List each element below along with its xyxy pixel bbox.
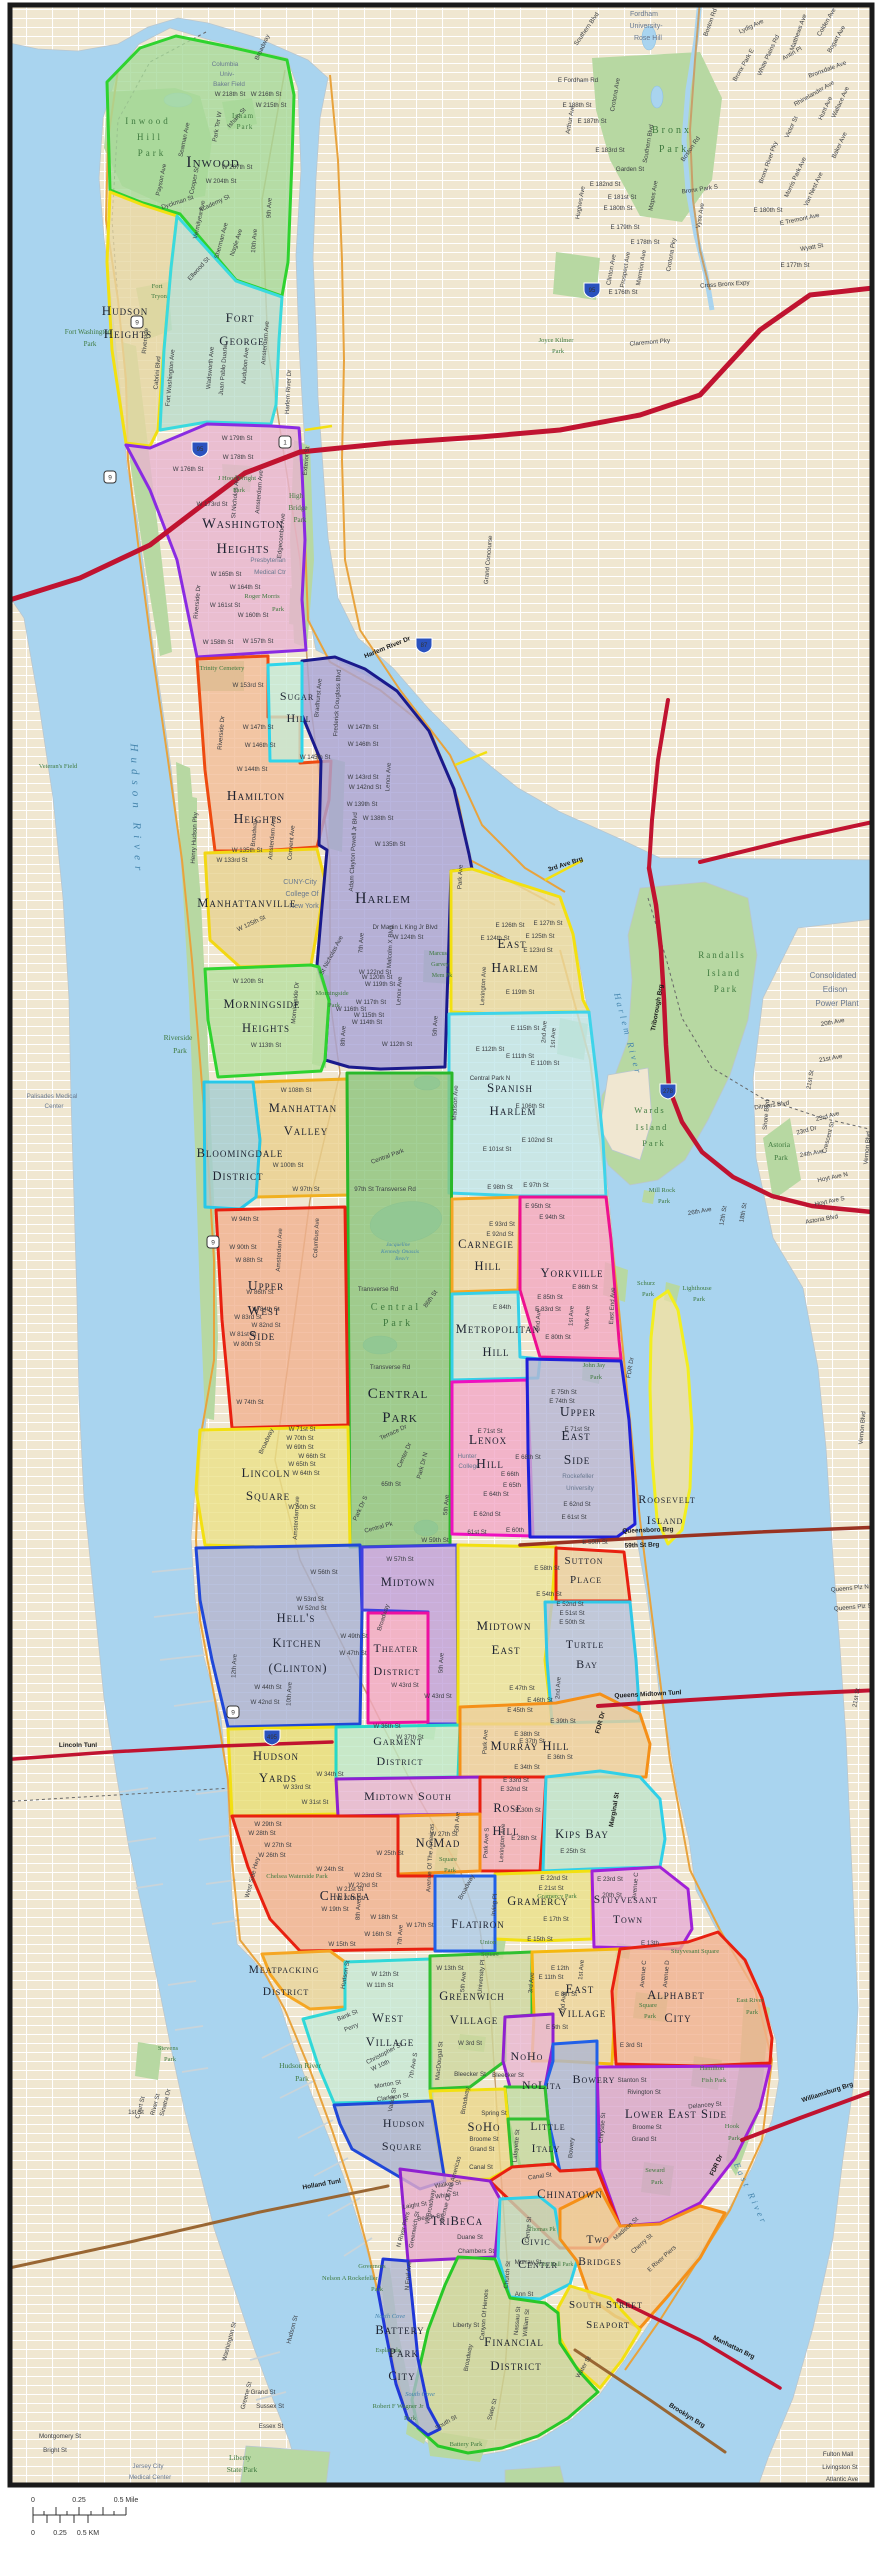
street-label: E 95th St bbox=[525, 1203, 551, 1210]
park-label: Schurz bbox=[637, 1280, 655, 1287]
park-label: High bbox=[289, 492, 304, 500]
neighborhood-label-washington-heights: Washington bbox=[202, 516, 284, 532]
park-label: Chelsea Waterside Park bbox=[266, 1873, 328, 1880]
park-label: Veteran's Field bbox=[39, 763, 78, 770]
street-label: W 47th St bbox=[339, 1650, 366, 1657]
neighborhood-label-east-village: East bbox=[566, 1982, 595, 1996]
scale-bar: 00.250.5 Mile00.250.5 KM bbox=[31, 2497, 138, 2537]
shield-number: 87 bbox=[421, 643, 428, 649]
street-label: W 94th St bbox=[231, 1216, 258, 1223]
street-label: Park Ave bbox=[456, 864, 464, 890]
street-label: 8th Ave bbox=[339, 1025, 347, 1046]
neighborhood-label-upper-east-side: Upper bbox=[560, 1404, 596, 1419]
neighborhood-label-two-bridges: Two bbox=[586, 2234, 609, 2246]
street-label: E 52nd St bbox=[556, 1601, 583, 1608]
neighborhood-label-two-bridges: Bridges bbox=[578, 2256, 622, 2268]
park-label: Park bbox=[714, 984, 739, 994]
park-label: Park bbox=[84, 340, 97, 348]
neighborhood-label-central-park: Central bbox=[368, 1386, 428, 1402]
street-label: W 139th St bbox=[347, 801, 378, 808]
street-label: E 46th St bbox=[527, 1697, 553, 1704]
park-label: Park bbox=[328, 1002, 341, 1009]
street-label: E 64th St bbox=[483, 1491, 509, 1498]
park-label: Park bbox=[693, 1296, 706, 1303]
street-label: W 64th St bbox=[292, 1470, 319, 1477]
neighborhood-label-hudson-yards: Hudson bbox=[253, 1749, 299, 1763]
street-label: Stanton St bbox=[618, 2077, 647, 2084]
street-label: Grand St bbox=[251, 2389, 276, 2396]
street-label: E 177th St bbox=[781, 262, 810, 269]
institution-label: Medical Ctr bbox=[254, 569, 286, 576]
street-label: E 179th St bbox=[611, 224, 640, 231]
street-label: 65th St bbox=[381, 1481, 401, 1488]
institution-label: Columbia bbox=[212, 61, 239, 68]
park-label: Bridge bbox=[288, 504, 307, 512]
street-label: E 58th St bbox=[534, 1565, 560, 1572]
street-label: 1st Ave bbox=[549, 1027, 557, 1048]
neighborhood-label-hells-kitchen: Kitchen bbox=[272, 1636, 321, 1650]
street-label: E 68th St bbox=[515, 1454, 541, 1461]
street-label: W 25th St bbox=[376, 1850, 403, 1857]
park-label: Randalls bbox=[698, 950, 746, 960]
street-label: E 62nd St bbox=[473, 1511, 500, 1518]
neighborhood-label-south-street-seaport: South Street bbox=[569, 2299, 643, 2311]
park-label: Park bbox=[644, 2013, 657, 2020]
street-label: W 33rd St bbox=[283, 1784, 311, 1791]
street-label: W 36th St bbox=[373, 1723, 400, 1730]
street-label: W 17th St bbox=[406, 1922, 433, 1929]
neighborhood-label-soho: SoHo bbox=[468, 2120, 501, 2134]
institution-label: Fordham bbox=[630, 11, 658, 18]
street-label: W 16th St bbox=[364, 1931, 391, 1938]
park-label: East River bbox=[736, 1997, 764, 2004]
institution-label: Medical Center bbox=[129, 2474, 171, 2481]
street-label: Atlantic Ave bbox=[826, 2476, 859, 2483]
street-label: E 17th St bbox=[543, 1916, 569, 1923]
street-label: E 47th St bbox=[509, 1685, 535, 1692]
street-label: E 102nd St bbox=[522, 1137, 553, 1144]
street-label: W 24th St bbox=[316, 1866, 343, 1873]
street-label: Grand St bbox=[470, 2146, 495, 2153]
street-label: W 114th St bbox=[352, 1019, 382, 1026]
street-label: Essex St bbox=[259, 2423, 284, 2430]
institution-label: Rose Hill bbox=[634, 35, 662, 42]
street-label: W 135th St bbox=[375, 841, 406, 848]
street-label: 2nd Ave bbox=[540, 1020, 548, 1043]
street-label: W 66th St bbox=[298, 1453, 325, 1460]
park-label: Park bbox=[642, 1291, 655, 1298]
scale-mile-label: 0.25 bbox=[72, 2497, 86, 2504]
neighborhood-label-hudson-heights: Heights bbox=[104, 326, 152, 341]
street-label: E 182nd St bbox=[590, 181, 621, 188]
park-label: Trinity Cemetery bbox=[200, 665, 245, 672]
park-label: Park bbox=[272, 606, 285, 613]
park-label: Park bbox=[237, 123, 254, 131]
street-label: Bleecker St bbox=[492, 2072, 524, 2079]
neighborhood-label-hudson-heights: Hudson bbox=[102, 303, 148, 318]
street-label: Dr Martin L King Jr Blvd bbox=[372, 924, 438, 931]
neighborhood-label-upper-east-side: Side bbox=[564, 1452, 591, 1467]
street-label: W 120th St bbox=[362, 974, 393, 981]
neighborhood-label-alphabet-city: City bbox=[664, 2011, 691, 2025]
street-label: E 3rd St bbox=[620, 2042, 643, 2049]
neighborhood-label-little-italy: Little bbox=[530, 2121, 565, 2133]
park-label: Square bbox=[639, 2002, 657, 2009]
street-label: W 145th St bbox=[300, 754, 331, 761]
neighborhood-label-greenwich-village: Greenwich bbox=[439, 1989, 505, 2003]
neighborhood-label-morningside-heights: Morningside bbox=[223, 997, 300, 1011]
neighborhood-label-fort-george: Fort bbox=[226, 310, 255, 325]
street-label: W 70th St bbox=[286, 1435, 313, 1442]
institution-label: Power Plant bbox=[815, 999, 859, 1008]
neighborhood-label-hells-kitchen: (Clinton) bbox=[269, 1661, 328, 1675]
road-label: Lincoln Tunl bbox=[59, 1742, 97, 1749]
street-label: E 34th St bbox=[514, 1764, 540, 1771]
institution-label: Edison bbox=[823, 985, 847, 994]
street-label: Ann St bbox=[515, 2291, 534, 2298]
street-label: W 112th St bbox=[382, 1041, 412, 1048]
neighborhood-label-roosevelt-island: Island bbox=[647, 1513, 684, 1527]
street-label: W 43rd St bbox=[391, 1682, 419, 1689]
park-label: John Jay bbox=[583, 1362, 606, 1369]
street-label: W 42nd St bbox=[251, 1699, 280, 1706]
street-label: E 38th St bbox=[514, 1731, 540, 1738]
street-label: 12th Ave bbox=[230, 1653, 238, 1678]
neighborhood-label-inwood: Inwood bbox=[186, 154, 240, 171]
neighborhood-label-financial-district: Financial bbox=[484, 2334, 544, 2349]
park-label: Tryon bbox=[151, 293, 167, 300]
street-label: W 173rd St bbox=[197, 501, 228, 508]
neighborhood-label-theater-district: District bbox=[374, 1664, 421, 1678]
neighborhood-label-hudson-yards: Yards bbox=[259, 1771, 297, 1785]
street-label: 7th Ave bbox=[396, 1924, 404, 1945]
street-label: W 143rd St bbox=[348, 774, 379, 781]
street-label: 5th Ave bbox=[431, 1015, 439, 1036]
street-label: E 51st St bbox=[559, 1610, 584, 1617]
park-label: Park bbox=[774, 1153, 788, 1162]
street-label: E 183rd St bbox=[595, 147, 625, 154]
park-label: Park bbox=[658, 1198, 671, 1205]
street-label: W 178th St bbox=[223, 454, 254, 461]
shield-number: 278 bbox=[663, 1089, 674, 1095]
park-label: Lighthouse bbox=[682, 1285, 711, 1292]
shield-number: 9 bbox=[211, 1240, 215, 1247]
neighborhood-label-yorkville: Yorkville bbox=[540, 1266, 603, 1280]
shield-number: 9 bbox=[108, 475, 112, 482]
street-label: E 50th St bbox=[559, 1619, 585, 1626]
street-label: E Fordham Rd bbox=[558, 77, 599, 84]
street-label: 5th Ave bbox=[453, 1811, 461, 1832]
neighborhood-label-east-village: Village bbox=[558, 2006, 607, 2020]
neighborhood-label-little-italy: Italy bbox=[532, 2143, 561, 2155]
neighborhood-label-sutton-place: Place bbox=[570, 1574, 602, 1586]
institution-label: Baker Field bbox=[213, 81, 245, 88]
street-label: W 13th St bbox=[436, 1965, 463, 1972]
water-label: Kennedy Onassis bbox=[380, 1249, 419, 1255]
street-label: E 98th St bbox=[487, 1184, 513, 1191]
institution-label: Rockefeller bbox=[562, 1473, 594, 1480]
street-label: W 44th St bbox=[254, 1684, 281, 1691]
street-label: W 138th St bbox=[363, 815, 394, 822]
map-image: W 218th StW 216th StW 215th StW 207th St… bbox=[0, 0, 882, 2560]
street-label: York Ave bbox=[583, 1305, 591, 1330]
street-label: E 94th St bbox=[539, 1214, 565, 1221]
neighborhood-label-midtown-east: East bbox=[492, 1642, 521, 1657]
neighborhood-label-manhattan-valley: Manhattan bbox=[269, 1101, 337, 1115]
institution-label: Hunter bbox=[458, 1453, 477, 1460]
park-label: Park bbox=[728, 2135, 741, 2142]
street-label: Broome St bbox=[469, 2136, 499, 2143]
street-label: W 29th St bbox=[254, 1821, 281, 1828]
street-label: W 108th St bbox=[281, 1087, 312, 1094]
neighborhood-label-spanish-harlem: Spanish bbox=[487, 1080, 533, 1095]
street-label: W 27th St bbox=[264, 1842, 291, 1849]
street-label: E 178th St bbox=[631, 239, 660, 246]
street-label: W 133rd St bbox=[217, 857, 248, 864]
street-label: Broome St bbox=[632, 2124, 662, 2131]
neighborhood-label-morningside-heights: Heights bbox=[242, 1021, 290, 1035]
street-label: E 23rd St bbox=[597, 1876, 623, 1883]
street-label: E 127th St bbox=[534, 920, 563, 927]
neighborhood-upper-east-side bbox=[527, 1359, 635, 1537]
park-label: Park bbox=[233, 487, 246, 494]
street-label: Montgomery St bbox=[39, 2433, 81, 2440]
street-label: Grand St bbox=[632, 2136, 657, 2143]
street-label: E 11th St bbox=[539, 1974, 564, 1981]
water-body bbox=[651, 86, 663, 108]
neighborhood-label-fort-george: George bbox=[219, 333, 264, 348]
street-label: E 110th St bbox=[531, 1060, 560, 1067]
neighborhood-label-stuyvesant-town: Town bbox=[613, 1914, 643, 1926]
neighborhood-label-east-harlem: East bbox=[497, 936, 526, 951]
street-label: Bright St bbox=[43, 2447, 67, 2454]
street-label: W 71st St bbox=[289, 1426, 316, 1433]
neighborhood-label-garment-district: Garment bbox=[373, 1734, 422, 1748]
street-label: E 180th St bbox=[604, 205, 633, 212]
street-label: E 112th St bbox=[476, 1046, 505, 1053]
scale-km-label: 0.5 KM bbox=[77, 2530, 99, 2537]
park-label: Nelson A Rockefeller bbox=[322, 2275, 379, 2282]
park-label: Park bbox=[164, 2056, 177, 2063]
street-label: W 43rd St bbox=[424, 1693, 452, 1700]
neighborhood-label-kips-bay: Kips Bay bbox=[555, 1827, 609, 1841]
scale-km-label: 0.25 bbox=[53, 2530, 67, 2537]
street-label: W 215th St bbox=[256, 102, 287, 109]
street-label: E 93rd St bbox=[489, 1221, 515, 1228]
street-label: E 85th St bbox=[537, 1294, 563, 1301]
park-label: Battery Park bbox=[450, 2441, 483, 2448]
street-label: W 31st St bbox=[302, 1799, 329, 1806]
neighborhood-label-roosevelt-island: Roosevelt bbox=[638, 1492, 696, 1506]
street-label: E 22nd St bbox=[540, 1875, 567, 1882]
street-label: E 80th St bbox=[545, 1334, 571, 1341]
neighborhood-label-nomad: NoMad bbox=[416, 1836, 461, 1850]
street-label: W 3rd St bbox=[458, 2040, 482, 2047]
neighborhood-label-upper-west-side: Upper bbox=[248, 1278, 284, 1293]
neighborhood-label-greenwich-village: Village bbox=[450, 2013, 499, 2027]
neighborhood-label-upper-west-side: West bbox=[248, 1303, 281, 1318]
street-label: Garden St bbox=[616, 166, 644, 173]
street-label: Transverse Rd bbox=[370, 1364, 411, 1371]
shield-number: 95 bbox=[589, 288, 596, 294]
neighborhood-label-turtle-bay: Bay bbox=[576, 1657, 598, 1671]
neighborhood-label-hudson-square: Hudson bbox=[383, 2116, 425, 2130]
neighborhood-label-stuyvesant-town: Stuyvesant bbox=[594, 1894, 658, 1906]
street-label: E 84th bbox=[493, 1304, 511, 1311]
park-label: Union bbox=[480, 1939, 497, 1946]
street-label: E 12th bbox=[551, 1965, 569, 1972]
street-label: E 115th St bbox=[511, 1025, 540, 1032]
street-label: W 204th St bbox=[206, 178, 237, 185]
street-label: 1st St bbox=[128, 2109, 144, 2116]
street-label: W 117th St bbox=[356, 999, 386, 1006]
street-label: E 45th St bbox=[507, 1707, 533, 1714]
street-label: W 113th St bbox=[251, 1042, 281, 1049]
street-label: W 176th St bbox=[173, 466, 204, 473]
park-label: Hamilton bbox=[700, 2065, 725, 2072]
water-label: Resv'r bbox=[394, 1256, 410, 1262]
park-label: Hook bbox=[725, 2123, 740, 2130]
park-label: Park bbox=[294, 516, 307, 524]
neighborhood-label-theater-district: Theater bbox=[374, 1641, 419, 1655]
neighborhood-label-west-village: Village bbox=[366, 2035, 415, 2049]
street-label: Spring St bbox=[481, 2110, 507, 2117]
street-label: 7th Ave bbox=[357, 932, 365, 953]
street-label: E 65th bbox=[503, 1482, 521, 1489]
street-label: W 146th St bbox=[348, 741, 379, 748]
park-label: Morningside bbox=[315, 990, 348, 997]
street-label: W 124th St bbox=[393, 934, 424, 941]
institution-label: Presbyterian bbox=[250, 557, 286, 564]
neighborhood-label-rose-hill: Rose bbox=[493, 1801, 522, 1815]
street-label: W 15th St bbox=[328, 1941, 355, 1948]
institution-label: Center bbox=[45, 1103, 64, 1110]
street-label: W 218th St bbox=[215, 91, 246, 98]
park-label: Park bbox=[371, 2286, 384, 2293]
street-label: E 13th bbox=[641, 1940, 659, 1947]
street-label: E 97th St bbox=[523, 1182, 549, 1189]
shield-number: 95 bbox=[197, 447, 204, 453]
park-label: Inwood bbox=[125, 116, 171, 126]
park-label: Bronx bbox=[652, 125, 692, 136]
street-label: E 61st St bbox=[561, 1514, 586, 1521]
park-label: Square bbox=[439, 1856, 457, 1863]
street-label: E 60th bbox=[506, 1527, 524, 1534]
manhattan-neighborhoods-map: W 218th StW 216th StW 215th StW 207th St… bbox=[0, 0, 882, 2560]
neighborhood-label-financial-district: District bbox=[490, 2358, 541, 2373]
street-label: W 100th St bbox=[273, 1162, 304, 1169]
street-label: W 49th St bbox=[340, 1633, 367, 1640]
park-label: Park bbox=[659, 144, 689, 155]
street-label: E 188th St bbox=[563, 102, 592, 109]
street-label: E 111th St bbox=[506, 1053, 534, 1060]
neighborhood-label-turtle-bay: Turtle bbox=[566, 1637, 605, 1651]
institution-label: Jersey City bbox=[132, 2463, 164, 2470]
street-label: W 69th St bbox=[286, 1444, 313, 1451]
neighborhood-label-rose-hill: Hill bbox=[492, 1824, 519, 1838]
street-label: 97th St Transverse Rd bbox=[354, 1186, 416, 1193]
park-label: Stevens bbox=[158, 2045, 179, 2052]
neighborhood-label-lincoln-square: Lincoln bbox=[242, 1465, 291, 1480]
street-label: W 57th St bbox=[386, 1556, 413, 1563]
neighborhood-kips-bay bbox=[543, 1771, 665, 1871]
park-label: Park bbox=[552, 348, 565, 355]
park-label: Island bbox=[707, 968, 741, 978]
street-label: 2nd Ave bbox=[554, 1676, 562, 1699]
neighborhood-label-bloomingdale-district: District bbox=[212, 1169, 263, 1183]
neighborhood-label-bloomingdale-district: Bloomingdale bbox=[197, 1146, 284, 1160]
street-label: Rivington St bbox=[627, 2089, 661, 2096]
street-label: W 28th St bbox=[248, 1830, 275, 1837]
street-label: W 142nd St bbox=[349, 784, 382, 791]
street-label: E 59th St bbox=[582, 1539, 608, 1546]
park-label: Park bbox=[651, 2179, 664, 2186]
neighborhood-label-spanish-harlem: Harlem bbox=[490, 1103, 537, 1118]
street-label: W 165th St bbox=[211, 571, 242, 578]
street-label: W 147th St bbox=[243, 724, 274, 731]
street-label: W 18th St bbox=[370, 1914, 397, 1921]
street-label: W 59th St bbox=[421, 1537, 448, 1544]
street-label: E 54th St bbox=[536, 1591, 562, 1598]
neighborhood-label-battery-park-city: City bbox=[388, 2369, 415, 2383]
park-label: Square bbox=[481, 1951, 499, 1958]
street-label: 9th Ave bbox=[265, 197, 273, 218]
street-label: 61st St bbox=[467, 1529, 487, 1536]
street-label: W 11th St bbox=[367, 1982, 394, 1989]
neighborhood-label-hamilton-heights: Hamilton bbox=[227, 788, 285, 803]
neighborhood-label-lenox-hill: Hill bbox=[476, 1456, 504, 1471]
park-label: Park bbox=[138, 148, 167, 158]
street-label: W 56th St bbox=[310, 1569, 337, 1576]
park-label: Governors bbox=[358, 2263, 386, 2270]
street-label: Livingston St bbox=[822, 2464, 858, 2471]
shield-number: 9 bbox=[231, 1710, 235, 1717]
street-label: Liberty St bbox=[453, 2322, 479, 2329]
street-label: E 5th St bbox=[546, 2024, 568, 2031]
street-label: W 147th St bbox=[348, 724, 379, 731]
street-label: W 19th St bbox=[321, 1906, 348, 1913]
neighborhood-label-metropolitan-hill: Metropolitan bbox=[456, 1322, 540, 1336]
neighborhood-label-east-harlem: Harlem bbox=[491, 960, 538, 975]
neighborhood-label-harlem: Harlem bbox=[355, 890, 411, 907]
street-label: W 164th St bbox=[230, 584, 261, 591]
street-label: Fulton Mall bbox=[823, 2451, 853, 2458]
street-label: W 97th St bbox=[292, 1186, 319, 1193]
park-label: Robert F Wagner Jr bbox=[373, 2403, 425, 2410]
street-label: Chambers St bbox=[458, 2248, 494, 2255]
neighborhood-label-gramercy: Gramercy bbox=[507, 1894, 569, 1908]
institution-label: Consolidated bbox=[810, 971, 857, 980]
street-label: 5th Ave bbox=[437, 1652, 445, 1673]
street-label: E 187th St bbox=[578, 118, 607, 125]
street-label: E 36th St bbox=[547, 1754, 573, 1761]
street-label: E 119th St bbox=[506, 989, 535, 996]
street-label: E 176th St bbox=[609, 289, 638, 296]
street-label: W 12th St bbox=[371, 1971, 398, 1978]
park-label: Marcus bbox=[429, 951, 448, 957]
park-label: Riverside bbox=[164, 1033, 193, 1042]
neighborhood-label-hudson-square: Square bbox=[382, 2139, 422, 2153]
water-label: South Cove bbox=[405, 2391, 435, 2398]
park-label: Liberty bbox=[229, 2453, 251, 2462]
neighborhood-label-meatpacking-district: Meatpacking bbox=[249, 1964, 320, 1976]
street-label: W 161st St bbox=[210, 602, 241, 609]
neighborhood-label-midtown-south: Midtown South bbox=[364, 1789, 452, 1803]
street-label: Sussex St bbox=[256, 2403, 284, 2410]
institution-label: Univ- bbox=[220, 71, 235, 78]
park-label: Hill bbox=[137, 132, 163, 142]
street-label: E 123rd St bbox=[523, 947, 553, 954]
